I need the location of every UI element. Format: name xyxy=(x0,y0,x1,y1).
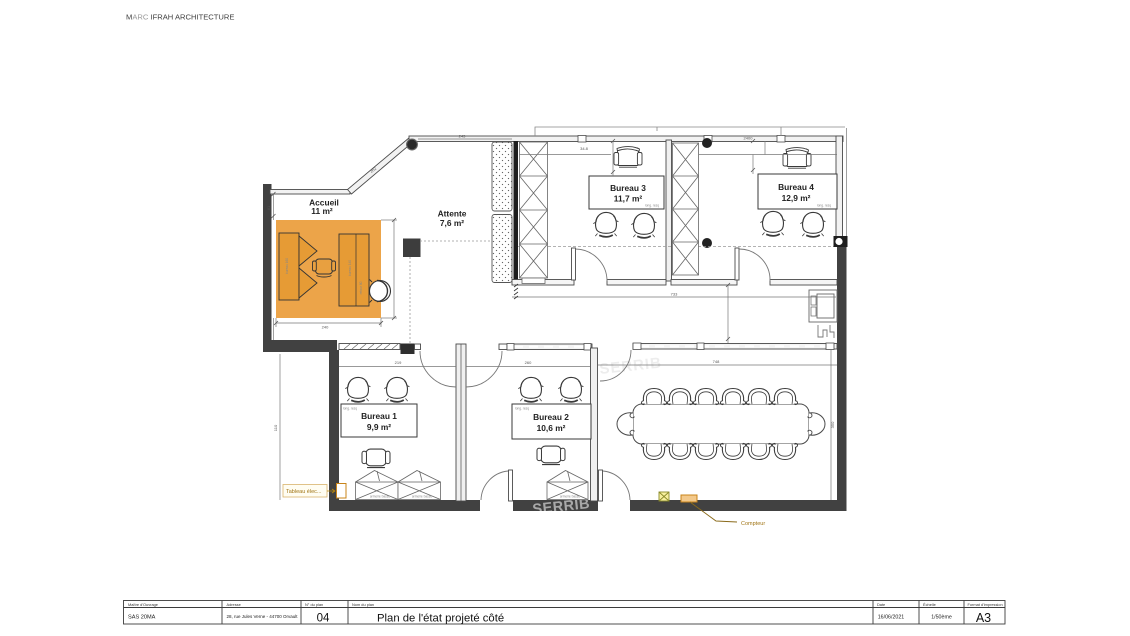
svg-text:Bureau 2: Bureau 2 xyxy=(533,412,569,422)
svg-text:armoire basse: armoire basse xyxy=(412,495,432,499)
svg-text:260: 260 xyxy=(525,360,532,365)
svg-text:350: 350 xyxy=(830,421,835,428)
svg-text:240: 240 xyxy=(322,325,329,330)
svg-text:2400: 2400 xyxy=(744,136,754,141)
svg-text:long. resq: long. resq xyxy=(515,407,529,411)
svg-text:long. resq: long. resq xyxy=(645,204,659,208)
svg-text:11 m²: 11 m² xyxy=(311,206,333,216)
svg-text:Date: Date xyxy=(877,602,885,607)
svg-text:110: 110 xyxy=(273,424,278,431)
svg-text:long. resq: long. resq xyxy=(343,407,357,411)
svg-text:Bureau 3: Bureau 3 xyxy=(610,183,646,193)
svg-text:7,6 m²: 7,6 m² xyxy=(440,218,464,228)
svg-text:Tableau élec...: Tableau élec... xyxy=(286,489,322,495)
svg-text:Attente: Attente xyxy=(438,209,467,219)
svg-text:243: 243 xyxy=(459,134,466,139)
svg-text:armoire basse: armoire basse xyxy=(370,495,390,499)
svg-text:MARC IFRAH ARCHITECTURE: MARC IFRAH ARCHITECTURE xyxy=(126,13,234,22)
svg-text:748: 748 xyxy=(713,359,720,364)
svg-text:81: 81 xyxy=(266,205,271,210)
svg-text:retour 80: retour 80 xyxy=(359,281,363,294)
svg-text:bureau 140: bureau 140 xyxy=(348,260,352,276)
svg-text:9,9 m²: 9,9 m² xyxy=(367,422,391,432)
svg-text:long. resq: long. resq xyxy=(817,204,831,208)
svg-text:219: 219 xyxy=(395,360,402,365)
svg-text:armoire basse: armoire basse xyxy=(560,495,580,499)
svg-text:16/06/2021: 16/06/2021 xyxy=(878,615,905,621)
svg-text:12,9 m²: 12,9 m² xyxy=(782,193,811,203)
svg-text:04: 04 xyxy=(317,613,330,625)
svg-text:A3: A3 xyxy=(976,611,991,625)
svg-text:SAS 20MA: SAS 20MA xyxy=(128,615,156,621)
svg-text:Nom du plan: Nom du plan xyxy=(352,602,374,607)
svg-text:Bureau 4: Bureau 4 xyxy=(778,182,814,192)
svg-text:N° du plan: N° du plan xyxy=(305,602,323,607)
svg-text:Plan de l'état projeté côté: Plan de l'état projeté côté xyxy=(377,613,504,625)
svg-text:Format d'impression: Format d'impression xyxy=(968,602,1003,607)
svg-text:Échelle: Échelle xyxy=(923,602,936,607)
svg-text:bureau 160: bureau 160 xyxy=(285,258,289,274)
svg-text:Adresse: Adresse xyxy=(227,602,241,607)
svg-text:Compteur: Compteur xyxy=(741,521,765,527)
svg-text:34.8: 34.8 xyxy=(580,146,589,151)
svg-text:733: 733 xyxy=(671,292,678,297)
svg-text:10,6 m²: 10,6 m² xyxy=(537,423,566,433)
svg-text:11,7 m²: 11,7 m² xyxy=(614,194,643,204)
svg-text:Bureau 1: Bureau 1 xyxy=(361,411,397,421)
svg-text:28, rue Jules Verne - 44700 Or: 28, rue Jules Verne - 44700 Orvault xyxy=(227,614,299,619)
svg-text:Maître d'Ouvrage: Maître d'Ouvrage xyxy=(128,602,158,607)
svg-text:1/50ème: 1/50ème xyxy=(931,615,952,621)
